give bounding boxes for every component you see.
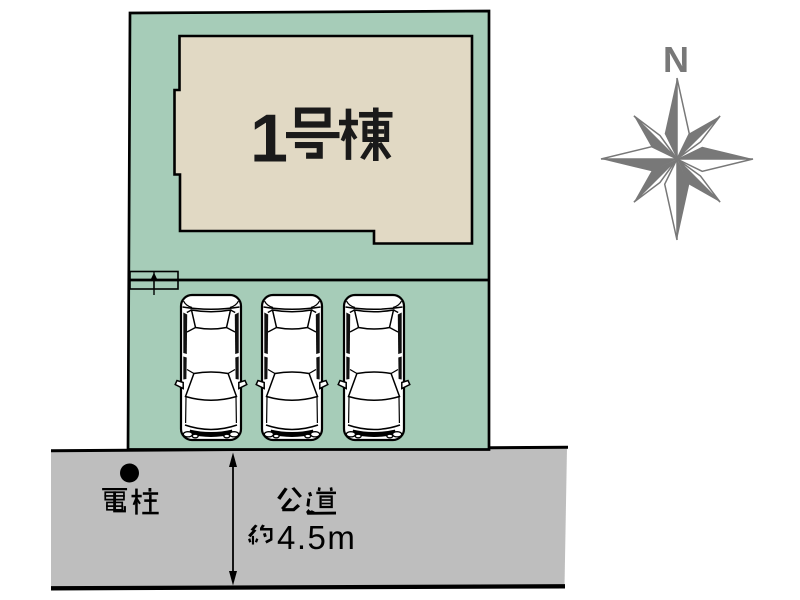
- svg-text:1: 1: [250, 101, 288, 177]
- svg-text:4.5m: 4.5m: [277, 519, 356, 556]
- svg-text:N: N: [663, 39, 689, 80]
